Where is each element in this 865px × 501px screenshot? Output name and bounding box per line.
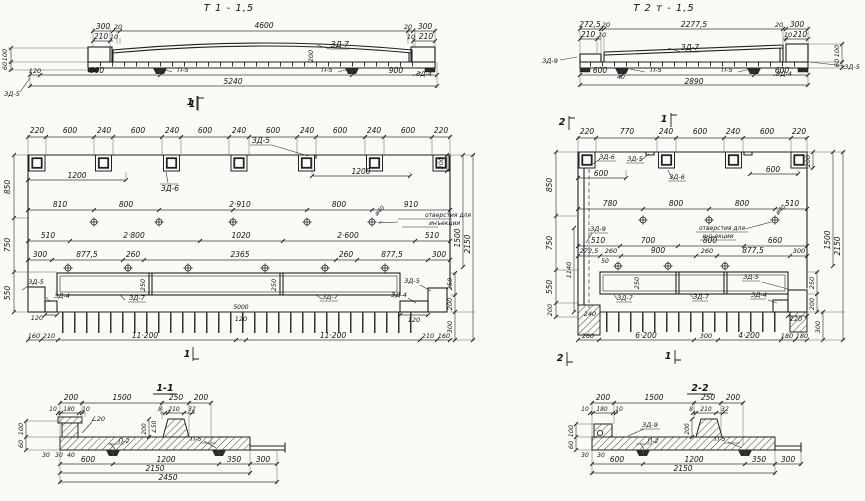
end-lip [798, 68, 808, 72]
dim-label: 850 [3, 180, 12, 195]
dim-label: 240 [97, 126, 112, 135]
ledge-right [773, 300, 788, 312]
dim-label: 300 [33, 250, 48, 259]
dim-label: 250 [446, 278, 454, 290]
dim-label: 120 [408, 316, 420, 324]
dim-label: 510 [785, 199, 800, 208]
injection-hole [63, 263, 72, 272]
dim-label: 2890 [684, 77, 703, 86]
dim-label: 2150 [673, 464, 692, 473]
dim-label: 2·800 [123, 231, 145, 240]
dim-label: 250 [169, 393, 184, 402]
dim-label: 600 [693, 127, 708, 136]
note-label: инъекции [429, 220, 460, 227]
dim-label: 780 [603, 199, 618, 208]
overhang [775, 443, 801, 452]
dim-label: 900 [651, 246, 666, 255]
part-label: П-5 [321, 66, 332, 74]
dim-label: 10 [615, 406, 623, 413]
dim-label: 1500 [112, 393, 131, 402]
dim-label: 300 [781, 455, 796, 464]
dim-label: 8 [689, 406, 693, 413]
dim-label: 300 [700, 332, 712, 340]
dim-label: 180 [781, 332, 793, 340]
t1-front-view: 220 600 240 600 240 600 240 600 240 600 … [3, 96, 475, 361]
dim-label: 1020 [231, 231, 250, 240]
dim-label: 240 [726, 127, 741, 136]
part-label: П-2 [118, 437, 129, 445]
drawing-title: Т 2 т - 1,5 [633, 3, 695, 14]
dim-label: 60 [1, 62, 9, 70]
section-1-1: 1-1 200 1500 250 200 10 180 10 8 210 32 … [17, 383, 285, 484]
dim-label: 250 [633, 277, 641, 289]
part-label: ЗД-4 [416, 70, 432, 78]
dim-label: 700 [641, 236, 656, 245]
dim-label: 10 [598, 31, 606, 39]
part-label: ЗД-9 [642, 421, 658, 429]
dim-label: 600 [593, 66, 608, 75]
dim-label: 510 [425, 231, 440, 240]
dim-label: 220 [580, 127, 595, 136]
overhang [250, 443, 285, 452]
note-label: отверстия для [699, 225, 745, 232]
dim-label: 4600 [254, 21, 273, 30]
dim-label: 600 [198, 126, 213, 135]
dim-label: 120 [790, 315, 802, 323]
dim-label: 900 [90, 66, 105, 75]
dim-label: 877,5 [742, 246, 764, 255]
dim-label: 300 [793, 247, 805, 255]
part-label: ЗД-7 [617, 294, 634, 302]
dim-label: 1500 [823, 230, 832, 249]
injection-hole [704, 215, 713, 224]
dim-label: 240 [165, 126, 180, 135]
injection-hole [380, 263, 389, 272]
dim-label: 550 [545, 280, 554, 295]
left-rib-stem [62, 423, 78, 437]
dim-label: 600 [333, 126, 348, 135]
dim-label: 770 [620, 127, 635, 136]
dim-label: 900 [389, 66, 404, 75]
dim-label: ø40 [373, 204, 387, 218]
dim-label: 240 [659, 127, 674, 136]
edge-rib-inner [60, 276, 397, 292]
dim-label: 850 [545, 178, 554, 193]
dim-label: 2150 [833, 236, 842, 255]
part-label: ЗД-5 [627, 155, 643, 163]
injection-hole [720, 261, 729, 270]
dim-label: 50 [601, 258, 609, 265]
dim-label: 10 [110, 33, 118, 41]
end-detail-right [788, 290, 807, 312]
injection-hole [302, 217, 311, 226]
dim-label: 350 [752, 455, 767, 464]
dim-label: 250 [270, 279, 278, 291]
dim-label: 210 [793, 30, 808, 39]
t1-side-view: Т 1 - 1,5 300 20 4600 20 300 210 10 10 2… [1, 3, 439, 111]
injection-hole [367, 217, 376, 226]
dim-label: 11·200 [320, 331, 346, 340]
dim-label: 250 [808, 277, 816, 289]
dim-label: 20 [775, 21, 783, 29]
dim-label: 200 [804, 155, 812, 167]
dim-label: 550 [3, 286, 12, 301]
drawing-title: Т 1 - 1,5 [204, 3, 255, 14]
opening [29, 155, 45, 171]
dim-label: 210 [581, 30, 596, 39]
dim-label: 350 [227, 455, 242, 464]
opening [164, 155, 180, 171]
dim-label: 6·200 [635, 331, 657, 340]
end-lip [580, 68, 590, 72]
part-label: ЗД-4 [54, 292, 70, 300]
injection-hole [154, 217, 163, 226]
dim-label: 600 [766, 165, 781, 174]
dim-label: 600 [81, 455, 96, 464]
dim-label: 200 [684, 423, 691, 435]
part-label: ЗД-5 [844, 63, 860, 71]
dim-label: 2450 [158, 473, 177, 482]
dim-label: 1140 [565, 262, 573, 279]
opening [231, 155, 247, 171]
end-block-left [580, 54, 601, 62]
dim-label: 1200 [351, 167, 370, 176]
dim-label: 240 [300, 126, 315, 135]
dim-label: 600 [63, 126, 78, 135]
dim-label: 200 [446, 298, 454, 310]
left-end-block [594, 424, 612, 437]
part-label: ЗД-5 [743, 273, 759, 281]
dim-label: 600 [610, 455, 625, 464]
opening [659, 152, 675, 168]
dim-label: 877,5 [381, 250, 403, 259]
dim-label: 30 [42, 452, 50, 459]
section-mark: 1 [184, 349, 191, 360]
dim-label: 660 [768, 236, 783, 245]
part-label: ЗД-4 [391, 291, 407, 299]
part-label: П-5 [650, 66, 661, 74]
dim-label: 200 [726, 393, 741, 402]
part-label: ЗД-4 [776, 70, 792, 78]
dim-label: 8 [158, 406, 162, 413]
dim-label: 180 [796, 332, 808, 340]
dim-label: 10 [82, 406, 90, 413]
injection-hole [613, 261, 622, 270]
dim-label: 120 [29, 67, 41, 75]
part-label: ЗД-5 [252, 136, 270, 145]
dim-label: 1200 [684, 455, 703, 464]
dim-label: 300 [432, 250, 447, 259]
part-label: ЗД-7 [322, 293, 339, 301]
slab [60, 437, 250, 450]
injection-hole [320, 263, 329, 272]
part-label: ЗД-7 [331, 40, 349, 49]
panel-outline [578, 152, 807, 305]
dim-label: 300 [256, 455, 271, 464]
part-label: П-2 [647, 437, 658, 445]
end-detail-right [428, 288, 447, 312]
dim-label: 200 [808, 298, 816, 310]
dim-label: 250 [139, 279, 147, 291]
dim-label: 200 [596, 393, 611, 402]
dim-label: 30 [55, 452, 63, 459]
dim-label: 300 [790, 20, 805, 29]
section-mark: 1 [187, 97, 194, 108]
dim-label: 30 [581, 452, 589, 459]
part-label: ЗД-7 [681, 43, 699, 52]
part-label: ЗД-6 [599, 153, 615, 161]
dim-label: 40 [67, 452, 75, 459]
part-label: ЗД-5 [28, 278, 44, 286]
dim-label: 200 [437, 157, 445, 169]
dim-label: 910 [404, 200, 419, 209]
dim-label: 60 [567, 441, 575, 449]
dim-label: 10 [407, 33, 415, 41]
dim-label: 30 [597, 452, 605, 459]
part-label: ЗД-6 [161, 184, 179, 193]
dim-label: 877,5 [76, 250, 98, 259]
part-label: ЗД-9 [542, 57, 558, 65]
t2-front-view: 220 770 240 600 240 600 220 600 600 200 … [545, 113, 845, 366]
dim-label: 300 [418, 22, 433, 31]
section-mark: 2 [559, 117, 566, 128]
dim-label: 2365 [230, 250, 249, 259]
dim-label: 272,5 [579, 20, 601, 29]
injection-hole [663, 261, 672, 270]
part-label: ЗД-7 [693, 293, 710, 301]
dim-label: 120 [31, 314, 43, 322]
slab [592, 437, 775, 450]
dim-label: 200 [64, 393, 79, 402]
dim-label: 810 [53, 200, 68, 209]
dim-label: 2150 [145, 464, 164, 473]
end-block-left [88, 47, 112, 62]
dim-label: 2277,5 [681, 20, 707, 29]
part-label: ЗД-5 [4, 90, 20, 98]
dim-label: 800 [735, 199, 750, 208]
dim-label: 4·200 [738, 331, 760, 340]
dim-label: 32 [188, 406, 196, 413]
blueprint-page: Т 1 - 1,5 300 20 4600 20 300 210 10 10 2… [0, 0, 865, 501]
dim-label: 210 [422, 332, 434, 340]
dim-label: 800 [332, 200, 347, 209]
dim-label: 272,5 [580, 247, 599, 255]
section-mark: 2 [557, 353, 564, 364]
dim-label: 200 [546, 304, 554, 316]
dim-label: 200 [194, 393, 209, 402]
dim-label: 510 [591, 236, 606, 245]
opening [726, 152, 742, 168]
dim-label: 210 [168, 406, 180, 413]
dim-label: 240 [232, 126, 247, 135]
end-block-right [411, 47, 435, 62]
dim-label: 260 [605, 247, 617, 255]
dim-label: 5240 [223, 77, 242, 86]
dim-label: 100 [833, 45, 841, 57]
dim-label: 300 [814, 321, 822, 333]
dim-label: 2·600 [337, 231, 359, 240]
dim-label: 11·200 [132, 331, 158, 340]
part-label: П-5 [721, 66, 732, 74]
injection-hole [260, 263, 269, 272]
dim-label: 10 [784, 31, 792, 39]
section-mark: 1 [661, 114, 668, 125]
dim-label: 40 [617, 74, 625, 81]
dim-label: 260 [582, 332, 594, 340]
dim-label: 60 [17, 440, 25, 448]
note-label: инъекции [702, 233, 733, 240]
dim-label: 120 [235, 315, 247, 323]
ledge-right [400, 301, 428, 312]
dim-label: 1500 [453, 228, 462, 247]
dim-label: 600 [131, 126, 146, 135]
dim-label: 60 [833, 59, 841, 67]
dim-label: 510 [41, 231, 56, 240]
injection-hole [638, 215, 647, 224]
dim-label: 20 [404, 23, 412, 31]
dim-label: 220 [792, 127, 807, 136]
injection-hole [89, 217, 98, 226]
dim-label: 1200 [156, 455, 175, 464]
dim-label: 210 [419, 32, 434, 41]
dim-label: 220 [30, 126, 45, 135]
dim-label: 800 [669, 199, 684, 208]
part-label: П-5 [190, 435, 201, 443]
dim-label: 180 [63, 406, 75, 413]
part-label: П-5 [177, 66, 188, 74]
dim-label: 200 [141, 423, 148, 435]
part-label: ЗД-9 [590, 225, 606, 233]
dim-label: 160 [28, 332, 40, 340]
dim-label: 240 [584, 310, 596, 318]
right-rib [163, 419, 189, 437]
dim-label: 250 [701, 393, 716, 402]
dim-label: 600 [760, 127, 775, 136]
slope-label: ∠50 [151, 420, 158, 433]
part-label: ЗД-7 [129, 294, 146, 302]
injection-hole [183, 263, 192, 272]
end-block-right [786, 44, 808, 62]
dim-label: 10 [49, 406, 57, 413]
blueprint-canvas: Т 1 - 1,5 300 20 4600 20 300 210 10 10 2… [0, 0, 865, 501]
dim-label: 750 [545, 236, 554, 251]
dim-label: 210 [43, 332, 55, 340]
dim-label: 210 [94, 32, 109, 41]
end-detail-left [28, 287, 45, 312]
slope-label: ∠20 [91, 415, 105, 423]
part-label: ЗД-4 [751, 291, 767, 299]
dim-label: 220 [434, 126, 449, 135]
dim-label: 200 [307, 50, 315, 62]
t2-side-view: Т 2 т - 1,5 272,5 20 2277,5 20 300 210 1… [542, 3, 860, 87]
dim-label: 100 [1, 49, 9, 61]
dim-label: 600 [266, 126, 281, 135]
ledge-left [45, 301, 57, 312]
dim-label: 600 [594, 169, 609, 178]
panel-top-edge [110, 43, 412, 62]
section-2-2: 2-2 200 1500 250 200 10 180 10 8 210 32 … [567, 383, 803, 475]
dim-label: 20 [114, 23, 122, 31]
dim-label: 750 [3, 238, 12, 253]
dim-label: 1500 [644, 393, 663, 402]
dim-label: 5000 [233, 304, 248, 311]
dim-label: 32 [721, 406, 729, 413]
lifting-loop-hole [597, 430, 602, 435]
injection-hole [228, 217, 237, 226]
dim-label: 260 [339, 250, 354, 259]
opening [96, 155, 112, 171]
dim-label: 2·910 [229, 200, 251, 209]
injection-hole [123, 263, 132, 272]
dim-label: 260 [701, 247, 713, 255]
dim-label: 300 [446, 321, 454, 333]
part-label: П-5 [714, 435, 725, 443]
part-label: ЗД-5 [404, 277, 420, 285]
dim-label: 300 [96, 22, 111, 31]
dim-label: 260 [126, 250, 141, 259]
note-label: отверстия для [425, 212, 471, 219]
dim-label: 100 [17, 423, 25, 435]
dim-label: 2150 [463, 234, 472, 253]
section-mark: 1 [665, 351, 672, 362]
dim-label: 1200 [67, 171, 86, 180]
dim-label: 20 [602, 21, 610, 29]
dim-label: 180 [596, 406, 608, 413]
dim-label: 240 [367, 126, 382, 135]
dim-label: 10 [581, 406, 589, 413]
dim-label: 800 [119, 200, 134, 209]
injection-hole [770, 215, 779, 224]
dim-label: 100 [567, 425, 575, 437]
part-label: ЗД-6 [669, 173, 685, 181]
opening [579, 152, 595, 168]
dim-label: 210 [700, 406, 712, 413]
dim-label: 600 [401, 126, 416, 135]
left-rib-flange [58, 417, 82, 423]
